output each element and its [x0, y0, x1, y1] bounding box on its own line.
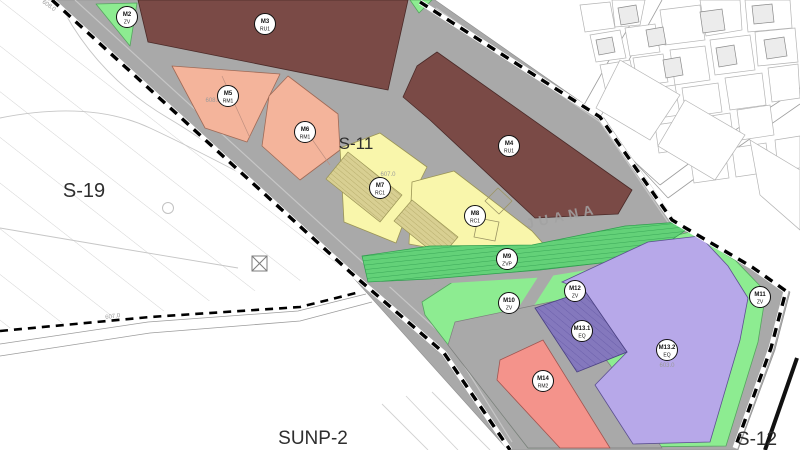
parcel-zone-code: RU1 [504, 149, 514, 155]
parcel-zone-code: RU1 [260, 27, 270, 33]
parcel-zone-code: ZV [572, 294, 579, 300]
sector-label-s-19: S-19 [63, 180, 105, 202]
parcel-zone-code: RM2 [538, 384, 549, 390]
elevation-mark: 603.0 [659, 363, 675, 369]
parcel-label-M4[interactable]: M4RU1 [499, 136, 520, 157]
parcel-name: M13.2 [659, 345, 676, 351]
parcel-zone-code: ZV [506, 306, 513, 312]
parcel-zone-code: ZV [757, 300, 764, 306]
parcel-label-M11[interactable]: M11ZV [750, 287, 771, 308]
parcel-name: M9 [503, 254, 512, 260]
parcel-name: M5 [224, 91, 233, 97]
parcel-zone-code: EQ [663, 353, 670, 359]
parcel-name: M4 [505, 141, 514, 147]
parcel-name: M7 [376, 183, 385, 189]
parcel-label-M2[interactable]: M2ZV [117, 7, 138, 28]
parcel-label-M13.1[interactable]: M13.1EQ [572, 321, 593, 342]
parcel-label-M5[interactable]: M5RM1 [218, 86, 239, 107]
parcel-zone-code: RC1 [470, 219, 480, 225]
parcel-zone-code: RM1 [223, 99, 234, 105]
parcel-label-M7[interactable]: M7RC1 [370, 178, 391, 199]
elevation-mark: 607.0 [380, 172, 396, 178]
parcel-name: M3 [261, 19, 270, 25]
parcel-zone-code: EQ [578, 334, 585, 340]
parcel-name: M11 [754, 292, 766, 298]
zoning-map-sheet: S-19S-11SUNP-2S-12JUANA608.0608.0607.060… [0, 0, 800, 450]
parcel-name: M10 [503, 298, 515, 304]
parcel-label-M8[interactable]: M8RC1 [465, 206, 486, 227]
parcel-label-M14[interactable]: M14RM2 [533, 371, 554, 392]
parcel-label-M6[interactable]: M6RM1 [295, 122, 316, 143]
parcel-name: M2 [123, 12, 132, 18]
parcel-label-M9[interactable]: M9ZVP [497, 249, 518, 270]
sector-label-sunp-2: SUNP-2 [278, 428, 348, 449]
parcel-zone-code: RC1 [375, 191, 385, 197]
parcel-label-M13.2[interactable]: M13.2EQ [657, 340, 678, 361]
parcel-label-M12[interactable]: M12ZV [565, 281, 586, 302]
parcel-label-M10[interactable]: M10ZV [499, 293, 520, 314]
parcel-name: M8 [471, 211, 480, 217]
parcel-name: M14 [537, 376, 549, 382]
sector-label-s-12: S-12 [737, 429, 777, 450]
parcel-label-M3[interactable]: M3RU1 [255, 14, 276, 35]
parcel-name: M6 [301, 127, 310, 133]
parcel-zone-code: ZVP [502, 262, 512, 268]
zoning-map-svg: S-19S-11SUNP-2S-12JUANA608.0608.0607.060… [0, 0, 800, 450]
parcel-zone-code: ZV [124, 20, 131, 26]
sector-label-s-11: S-11 [339, 134, 374, 153]
parcel-name: M13.1 [574, 326, 591, 332]
parcel-name: M12 [569, 286, 581, 292]
parcel-zone-code: RM1 [300, 135, 311, 141]
